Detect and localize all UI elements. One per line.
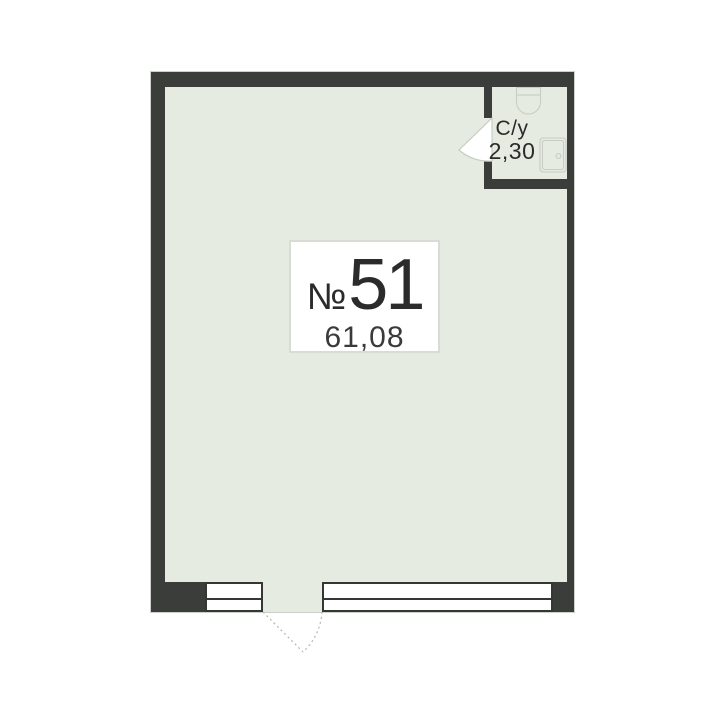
window-right-divider: [324, 598, 551, 600]
balcony-door-swing-icon: [263, 612, 322, 652]
wall-pier-bottom-left: [151, 582, 205, 612]
bathroom-wall-bottom: [484, 179, 567, 189]
wall-pier-bottom-right: [553, 582, 574, 612]
unit-label-card[interactable]: № 51 61,08: [289, 240, 440, 353]
unit-number-row: № 51: [291, 244, 438, 308]
bathroom-area: 2,30: [480, 139, 544, 163]
number-sign: №: [307, 276, 347, 318]
wall-right: [567, 72, 574, 612]
bathroom-wall-left-upper: [484, 87, 492, 118]
wall-top: [151, 72, 574, 87]
unit-number: 51: [348, 244, 422, 326]
balcony-door-opening: [263, 582, 322, 612]
bathroom-label: С/у: [482, 118, 542, 140]
window-right: [322, 582, 553, 612]
floor-plan-canvas: С/у 2,30 № 51 61,08: [0, 0, 726, 726]
window-left-divider: [207, 598, 261, 600]
window-left: [205, 582, 263, 612]
unit-area: 61,08: [291, 321, 438, 355]
wall-left: [151, 72, 165, 612]
